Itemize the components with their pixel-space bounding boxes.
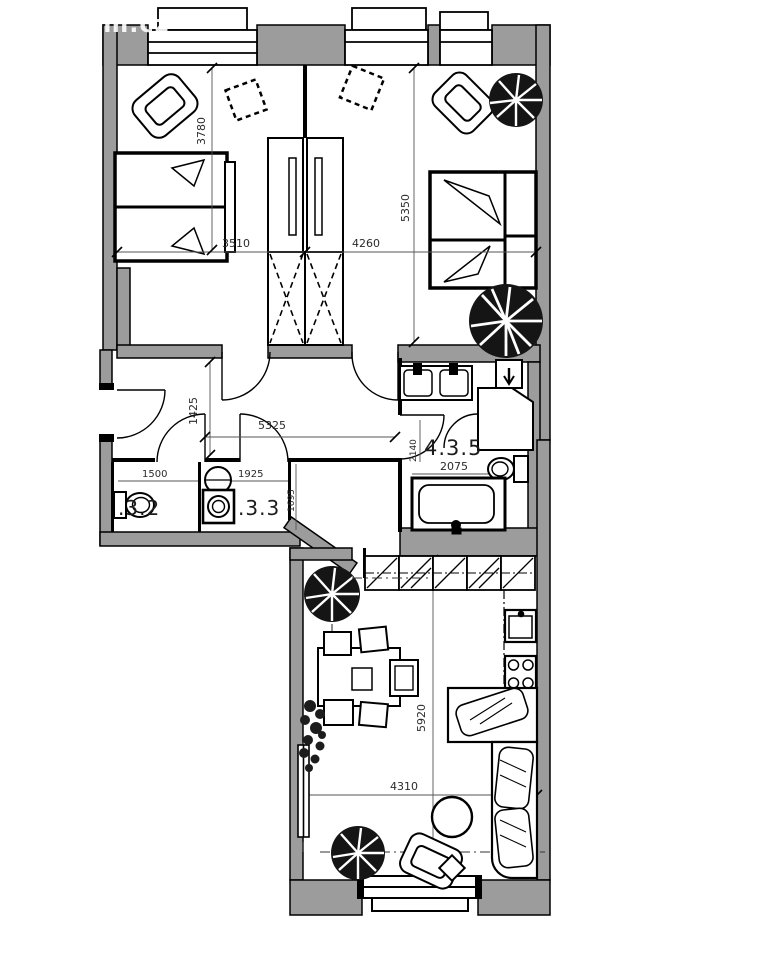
- bed-double-left: [115, 153, 235, 261]
- dim-laundry-depth: 1695: [288, 489, 297, 512]
- window-living: [358, 876, 481, 911]
- dim-living-width: 4310: [390, 781, 418, 792]
- double-sink: [400, 364, 472, 400]
- kitchen-sink-icon: [505, 610, 536, 642]
- bed-double-right: [430, 172, 536, 288]
- floor-plan-drawing: [0, 0, 759, 957]
- plant-icon: [469, 284, 543, 358]
- wardrobe-x-doors: [268, 252, 343, 345]
- armchair-right-bedroom: [428, 68, 497, 137]
- stove-icon: [505, 656, 536, 692]
- wardrobe-cabinets: [268, 138, 343, 252]
- sofa-corner: [448, 686, 537, 878]
- dim-bedroom-left-depth: 3780: [196, 117, 207, 145]
- armchair-left-bedroom: [128, 70, 202, 143]
- dim-bedroom-right-width: 4260: [352, 238, 380, 249]
- room-label-bathroom: 4.3.5: [424, 436, 482, 460]
- wall-stub: [99, 434, 114, 442]
- washing-machine-icon: [203, 490, 234, 523]
- wall-stub: [99, 383, 114, 390]
- floor-plan: sm.cz 3780 3510 4260 5350 1425 5325 1500…: [0, 0, 759, 957]
- plant-icon: [489, 73, 543, 127]
- window-bedroom-right: [345, 8, 492, 65]
- plant-icon: [304, 566, 360, 622]
- kitchen-upper-cabinets: [365, 556, 535, 590]
- room-label-wc: .3.2: [118, 496, 160, 520]
- dim-bathroom-width: 2075: [440, 461, 468, 472]
- dim-living-depth: 5920: [416, 704, 427, 732]
- dim-bedroom-left-width: 3510: [222, 238, 250, 249]
- dim-laundry-width: 1925: [238, 470, 263, 480]
- chair-dashed-right: [340, 66, 384, 110]
- room-label-laundry: .3.3: [238, 496, 280, 520]
- dining-table: [318, 648, 400, 706]
- dim-hallway-depth: 1425: [188, 397, 199, 425]
- chair-dashed-left: [225, 79, 266, 120]
- watermark: sm.cz: [88, 10, 170, 38]
- bathtub: [412, 478, 505, 534]
- shower: [478, 360, 533, 450]
- plant-icon: [331, 826, 385, 880]
- coffee-table-round: [432, 797, 472, 837]
- radiator: [298, 745, 309, 837]
- dim-bedroom-right-depth: 5350: [400, 194, 411, 222]
- entrance-opening: [98, 390, 114, 434]
- dim-wc-width: 1500: [142, 470, 167, 480]
- dim-bathroom-depth: 2140: [410, 439, 419, 462]
- dim-hallway-width: 5325: [258, 420, 286, 431]
